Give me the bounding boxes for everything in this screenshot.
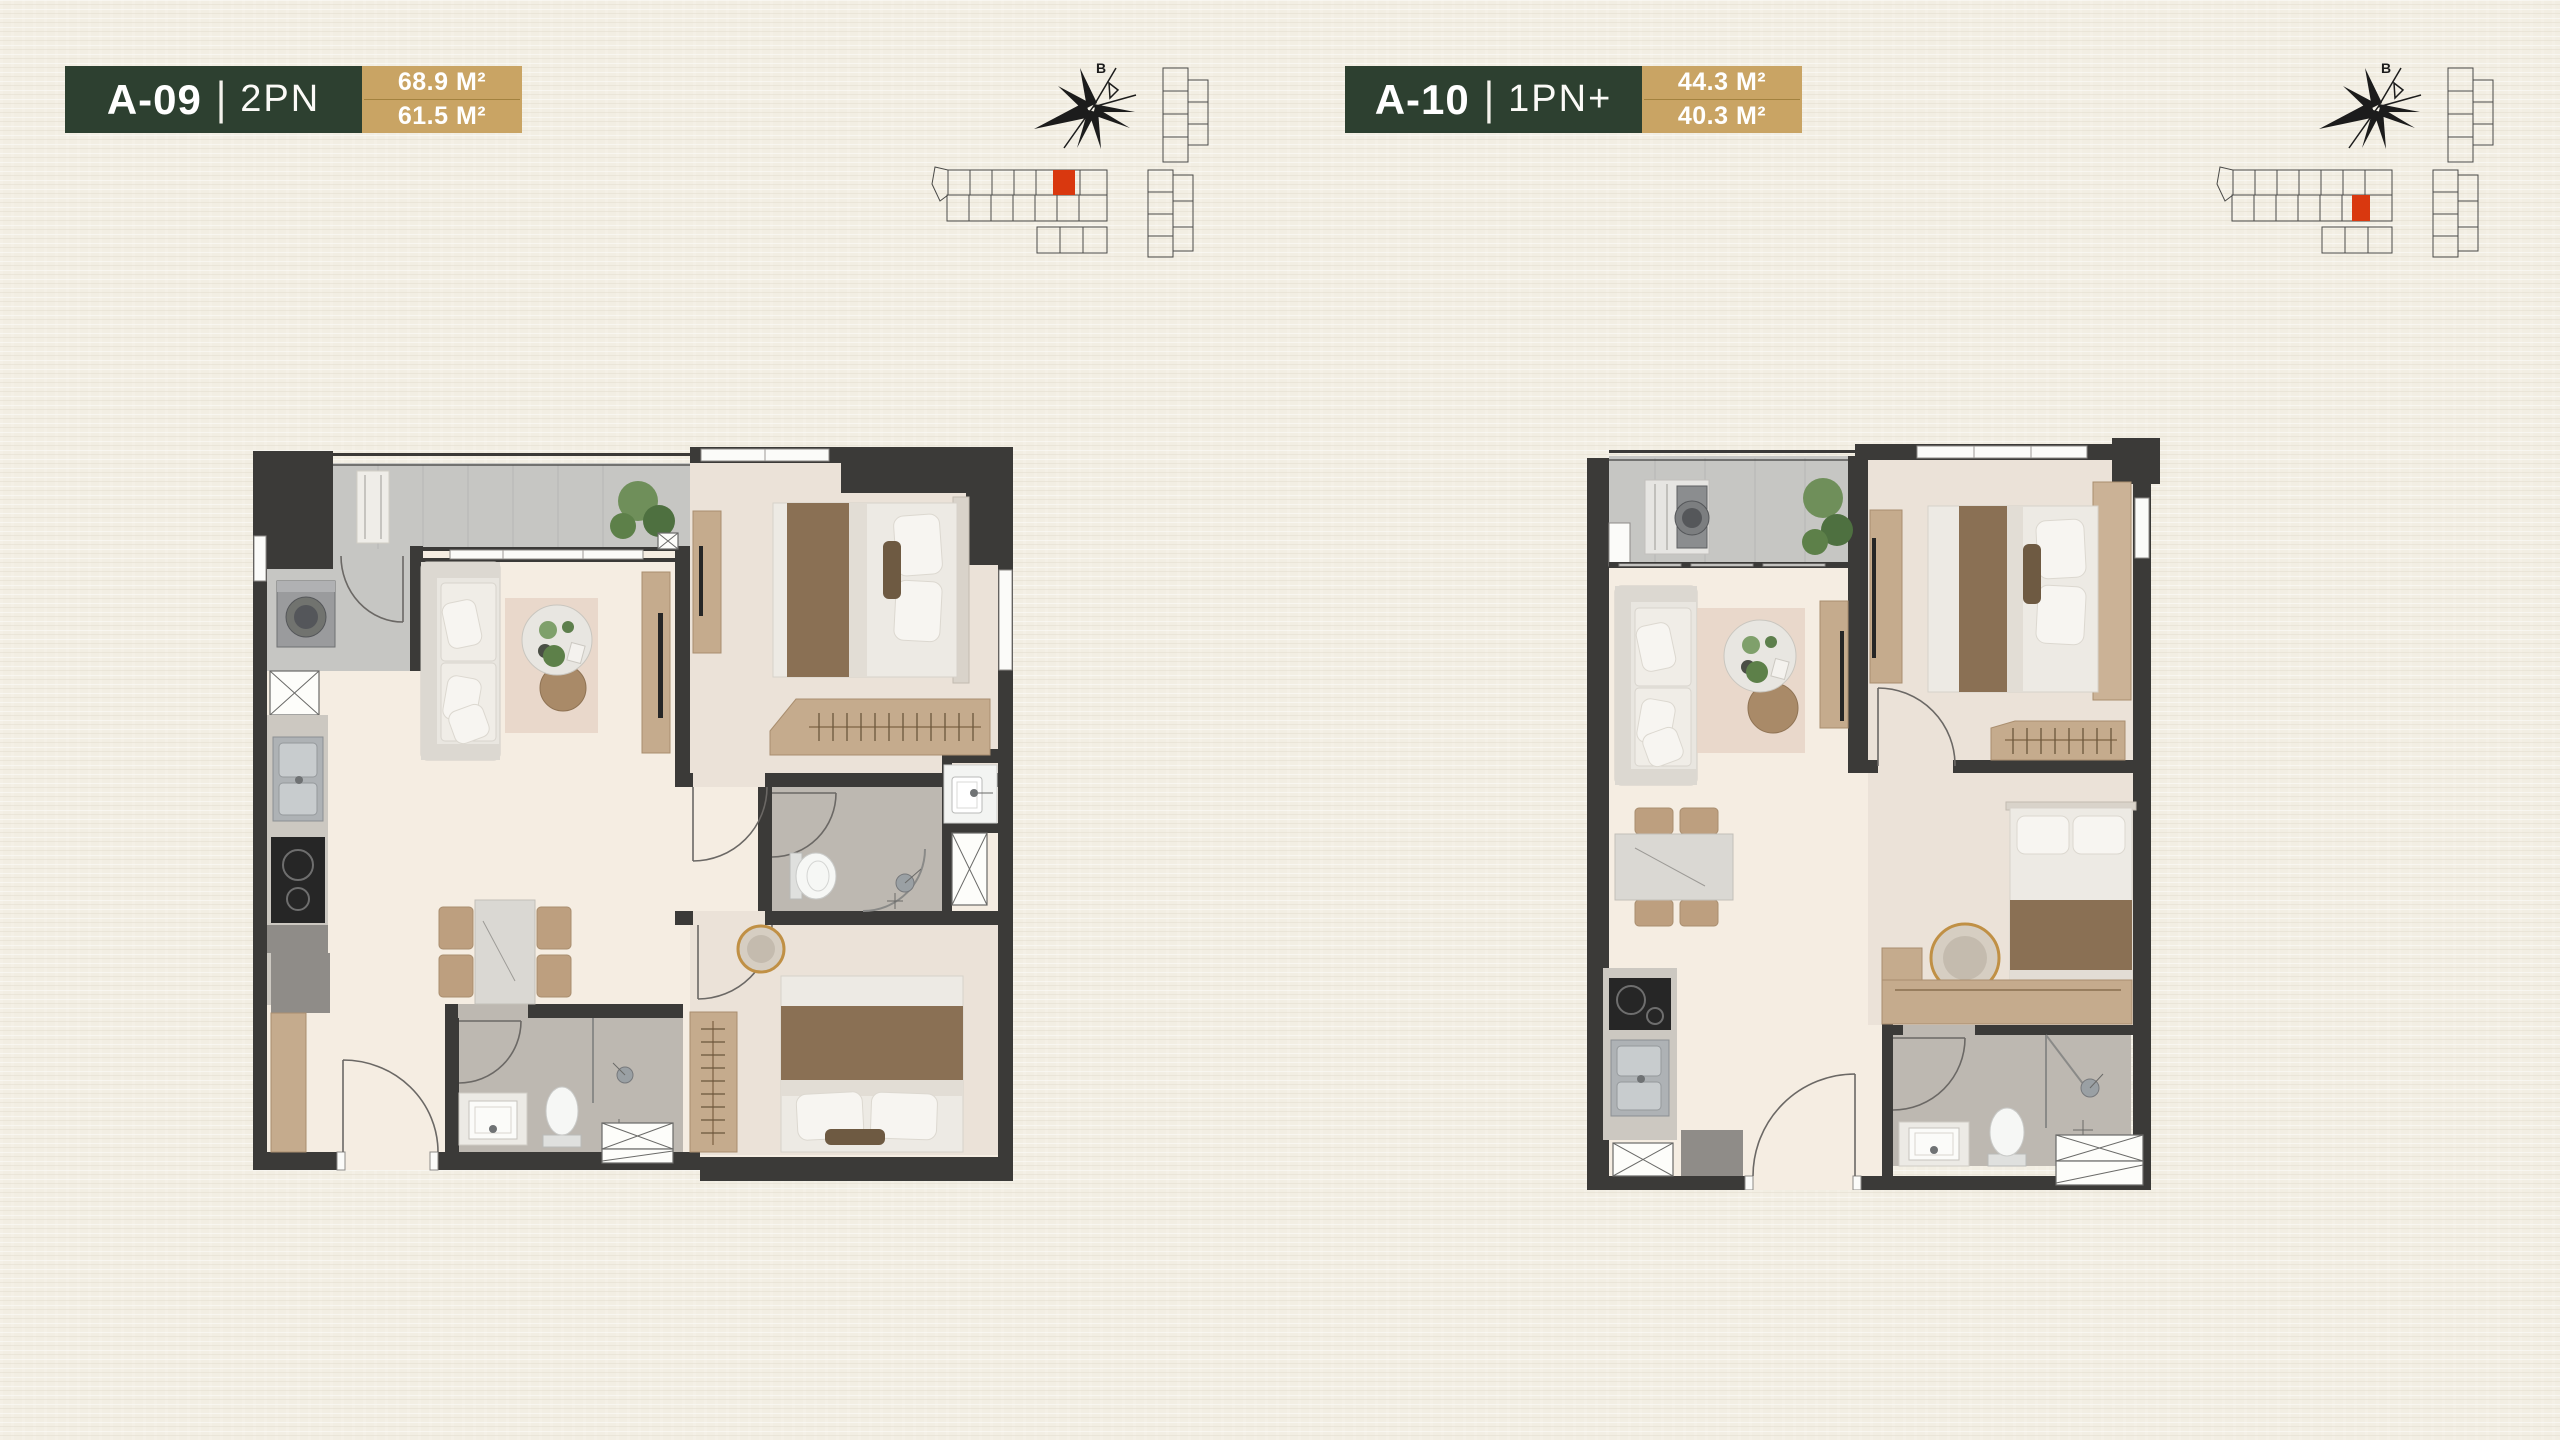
washing-machine-icon <box>1645 480 1709 554</box>
toilet-icon <box>790 853 836 899</box>
compass-label: B <box>2381 60 2391 76</box>
shaft-hatch-balcony <box>658 533 678 549</box>
area-net: 40.3 M² <box>1642 100 1802 133</box>
sofa <box>1615 586 1697 785</box>
area-gross: 68.9 M² <box>362 66 522 99</box>
washbasin-icon <box>944 765 997 823</box>
cooktop-icon <box>1609 978 1671 1030</box>
compass-label: B <box>1096 60 1106 76</box>
area-gross: 44.3 M² <box>1642 66 1802 99</box>
washbasin-icon <box>1899 1122 1969 1166</box>
bed2 <box>2006 802 2136 980</box>
unit-badge-areas: 44.3 M² 40.3 M² <box>1642 66 1802 133</box>
bedroom1-dresser <box>693 511 721 653</box>
floorplan-a09 <box>253 441 1013 1181</box>
wardrobe-bedroom2 <box>690 1012 737 1152</box>
kitchen-cabinet <box>1681 1130 1743 1176</box>
compass-icon: B <box>1034 60 1136 149</box>
entry-cabinet <box>271 1013 306 1152</box>
tv-cabinet <box>642 572 670 753</box>
compass-icon: B <box>2319 60 2421 149</box>
kitchen-sink-icon <box>1611 1040 1669 1116</box>
unit-badge-a09: A-09 | 2PN 68.9 M² 61.5 M² <box>65 66 522 133</box>
shaft-hatch-left <box>1613 1143 1673 1176</box>
unit-badge-a10: A-10 | 1PN+ 44.3 M² 40.3 M² <box>1345 66 1802 133</box>
wardrobe-bedroom1 <box>1991 721 2125 760</box>
shaft-hatch-right <box>952 833 987 905</box>
kitchen-cabinet2 <box>271 953 330 1013</box>
bed-bedroom1 <box>773 497 969 683</box>
shaft-hatch-right <box>2056 1135 2143 1185</box>
cooktop-icon <box>271 837 325 923</box>
area-net: 61.5 M² <box>362 100 522 133</box>
round-chair <box>738 926 784 972</box>
unit-type: 2PN <box>240 78 320 121</box>
floorplan-a10 <box>1585 438 2160 1190</box>
toilet-icon <box>1988 1108 2026 1166</box>
kitchen-cabinet <box>267 925 328 953</box>
badge-divider: | <box>1484 74 1494 126</box>
unit-code: A-10 <box>1375 76 1470 124</box>
highlighted-unit-cell <box>1053 170 1075 195</box>
unit-badge-areas: 68.9 M² 61.5 M² <box>362 66 522 133</box>
unit-code: A-09 <box>107 76 202 124</box>
highlighted-unit-cell <box>2352 195 2370 221</box>
washbasin-icon <box>459 1093 527 1145</box>
washing-machine-icon <box>277 581 335 647</box>
unit-badge-left: A-10 | 1PN+ <box>1345 66 1642 133</box>
badge-divider: | <box>216 74 226 126</box>
shaft-hatch-bottom <box>602 1123 673 1163</box>
wardrobe-bedroom1 <box>770 699 990 755</box>
shaft-hatch-left <box>270 671 319 715</box>
unit-type: 1PN+ <box>1508 78 1612 121</box>
keyplan-a09: B <box>930 55 1210 270</box>
tv-cabinet <box>1820 601 1848 728</box>
balcony-bench <box>357 471 389 543</box>
unit-badge-left: A-09 | 2PN <box>65 66 362 133</box>
bed-bedroom2 <box>781 976 963 1152</box>
kitchen-sink-icon <box>273 737 323 821</box>
bedroom1-tv-console <box>1870 510 1902 683</box>
keyplan-a10: B <box>2215 55 2495 270</box>
sofa <box>421 562 500 760</box>
bed-bedroom1 <box>1928 482 2131 700</box>
